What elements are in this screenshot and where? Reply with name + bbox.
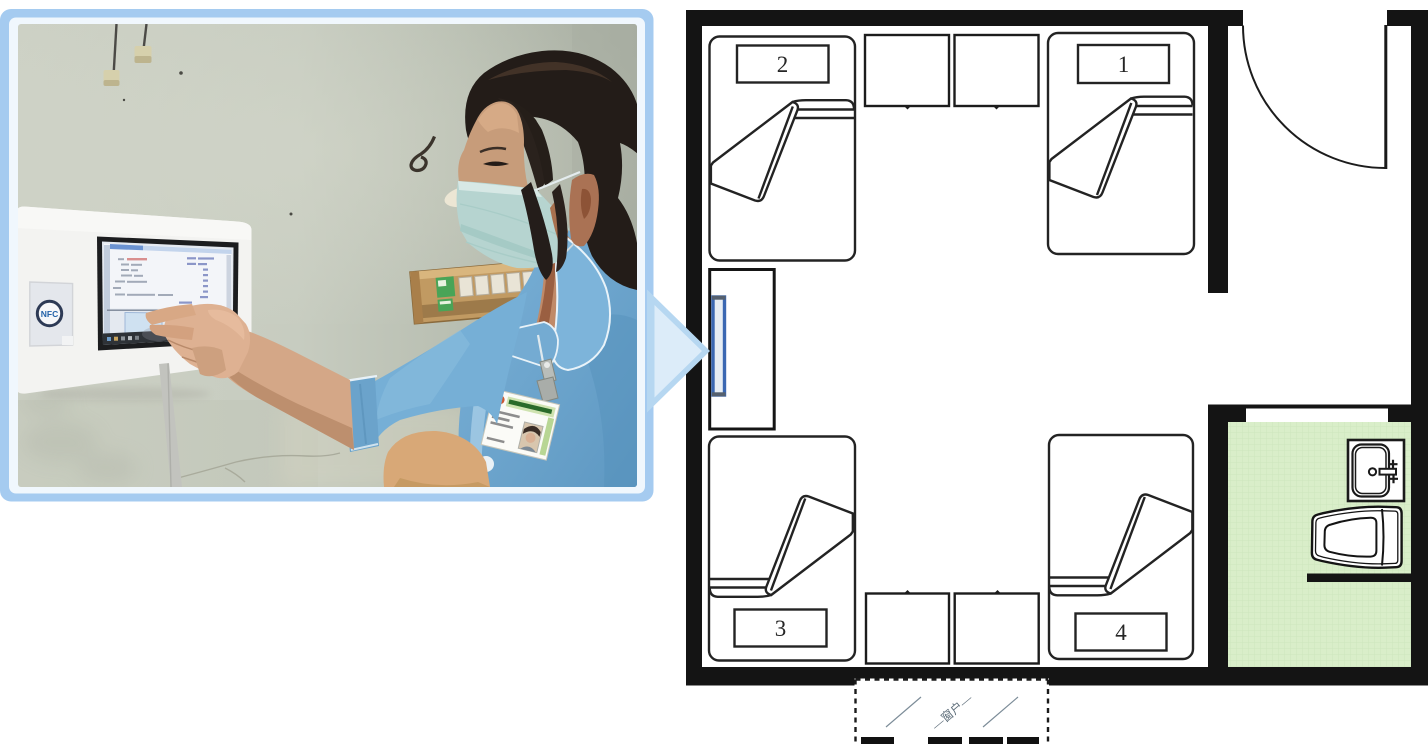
svg-text:NFC: NFC [41,309,58,319]
svg-text:3: 3 [775,616,787,641]
svg-text:4: 4 [1115,620,1127,645]
svg-text:2: 2 [777,52,789,77]
svg-text:1: 1 [1118,52,1130,77]
